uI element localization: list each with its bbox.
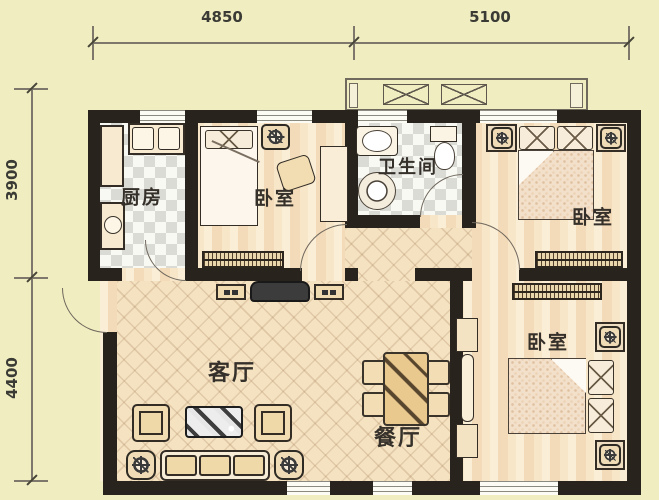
wall-bottom (103, 481, 287, 495)
dim-label-3900: 3900 (3, 159, 21, 201)
plant-icon (491, 127, 513, 149)
wall-bedrooms-divider (519, 268, 627, 281)
dim-line-left (31, 88, 33, 480)
label-bedroom-top: 卧室 (254, 184, 296, 211)
wall-bottom (412, 481, 480, 495)
wall-left-upper (88, 110, 100, 281)
dim-label-5100: 5100 (469, 8, 511, 26)
bathroom-sink-bowl (362, 130, 392, 152)
sofa-cushion (233, 455, 265, 476)
armchair-cushion (139, 411, 163, 435)
pillow (557, 126, 593, 150)
entry-door-arc (62, 288, 107, 333)
window-bedroom-bottom (480, 481, 558, 495)
tv (250, 281, 310, 302)
wall-bathroom-bottom (345, 215, 420, 228)
toilet-tank (430, 126, 457, 142)
kitchen-stove-burner (104, 216, 122, 234)
label-bedroom-bottom: 卧室 (527, 328, 569, 355)
armchair-cushion (261, 411, 285, 435)
dining-chair (427, 392, 450, 417)
sliding-door-bracket (456, 424, 478, 458)
pillow (519, 126, 555, 150)
sliding-door-bracket (456, 318, 478, 352)
plant-icon (600, 127, 622, 149)
plant-icon (599, 326, 621, 348)
window-bedroom-right (480, 110, 557, 123)
kitchen-sink-basin (132, 127, 154, 150)
pillow (588, 360, 614, 395)
label-dining: 餐厅 (374, 420, 422, 452)
window-kitchen (140, 110, 187, 123)
dim-line-top (92, 42, 628, 44)
wardrobe (535, 251, 623, 268)
balcony-rail-left (349, 83, 358, 108)
desk (320, 146, 348, 222)
plant-icon (599, 444, 621, 466)
wall-bathroom-bedroom-right (462, 110, 476, 228)
label-living: 客厅 (208, 355, 256, 387)
coffee-table (185, 406, 243, 438)
plant-icon (261, 124, 290, 150)
sofa (160, 450, 270, 481)
window-living (287, 481, 330, 495)
wall-kitchen-bedroom (185, 110, 198, 281)
wardrobe (512, 283, 602, 300)
sofa-cushion (165, 455, 197, 476)
kitchen-sink-basin (158, 127, 180, 150)
wall-kitchen-bottom-stub (88, 268, 122, 281)
plant-icon (126, 450, 156, 480)
wall-tv (185, 268, 302, 281)
sliding-door-leaf (461, 354, 474, 422)
floor-plan: 4850 5100 3900 4400 (0, 0, 659, 500)
window-bedroom-top (257, 110, 312, 123)
wall-bottom (330, 481, 373, 495)
dim-label-4400: 4400 (3, 357, 21, 399)
label-bedroom-right: 卧室 (572, 203, 614, 230)
dining-chair (362, 392, 385, 417)
kitchen-counter (100, 125, 124, 187)
dining-chair (362, 360, 385, 385)
window-bathroom (358, 110, 407, 123)
balcony-window-box (383, 84, 429, 105)
dining-table (383, 352, 429, 426)
dim-label-4850: 4850 (201, 8, 243, 26)
sofa-cushion (199, 455, 231, 476)
pillow (588, 398, 614, 433)
wall-hall-bedroom-bottom (415, 268, 472, 281)
tv-speaker (216, 284, 246, 300)
label-bathroom: 卫生间 (378, 153, 438, 179)
window-dining (373, 481, 412, 495)
plant-icon (274, 450, 304, 480)
wall-left-lower (103, 332, 117, 481)
wall-right (627, 110, 641, 495)
dining-chair (427, 360, 450, 385)
label-kitchen: 厨房 (121, 183, 163, 210)
balcony-rail-right (570, 83, 583, 108)
balcony-window-box (441, 84, 487, 105)
tv-speaker (314, 284, 344, 300)
wardrobe (202, 251, 284, 268)
